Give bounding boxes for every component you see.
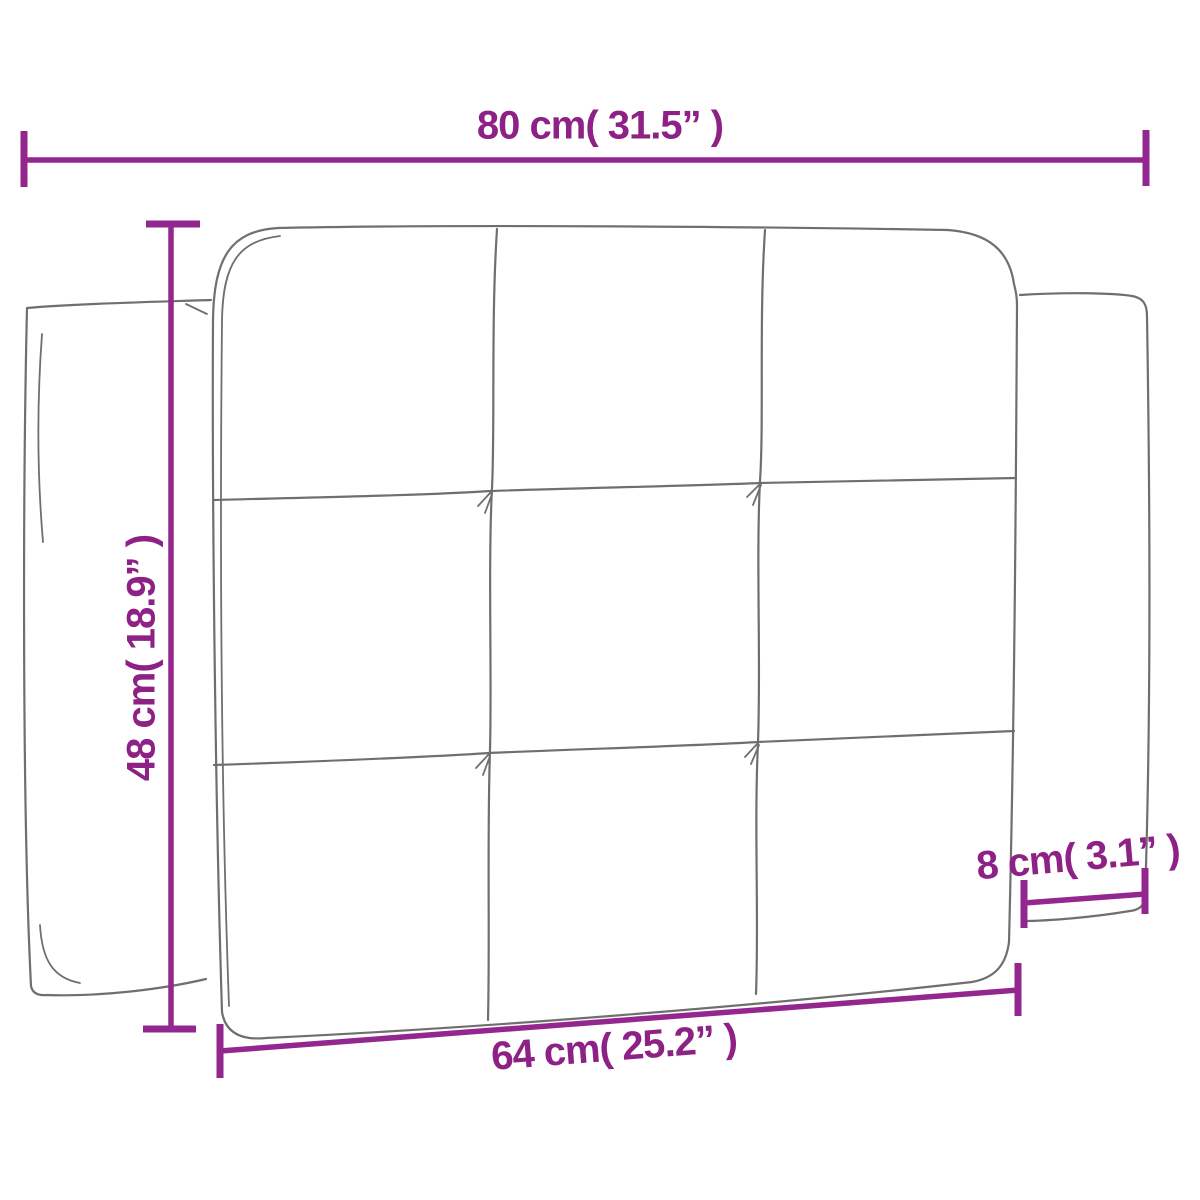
headboard-drawing [24,226,1149,1038]
back-panel-right [1020,293,1149,921]
top-width-label: 80 cm( 31.5” ) [477,104,723,149]
back-panel-left-inner-edge [38,334,43,542]
left-height-label: 48 cm( 18.9” ) [120,535,165,781]
back-panel-left [24,300,211,995]
back-panel-left-join-tick [186,304,207,314]
dimension-diagram: 80 cm( 31.5” ) 48 cm( 18.9” ) 64 cm( 25.… [0,0,1200,1200]
back-panel-left-inner-corner [40,925,80,983]
headboard-line-art [0,0,1200,1200]
cushion-outline [213,226,1017,1038]
